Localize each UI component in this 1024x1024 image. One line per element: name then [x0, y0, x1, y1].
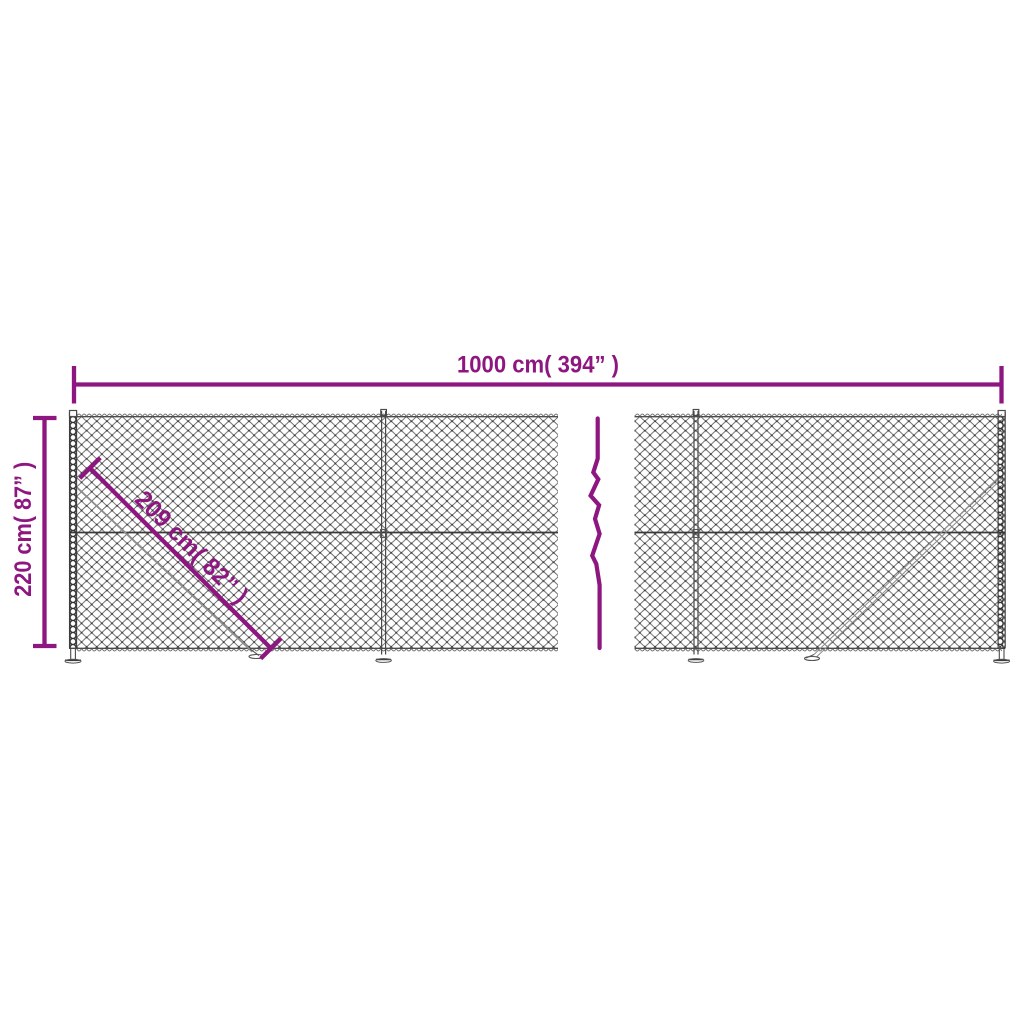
svg-text:220 cm( 87” ): 220 cm( 87” ) [10, 462, 37, 597]
svg-text:1000 cm( 394” ): 1000 cm( 394” ) [457, 352, 619, 379]
